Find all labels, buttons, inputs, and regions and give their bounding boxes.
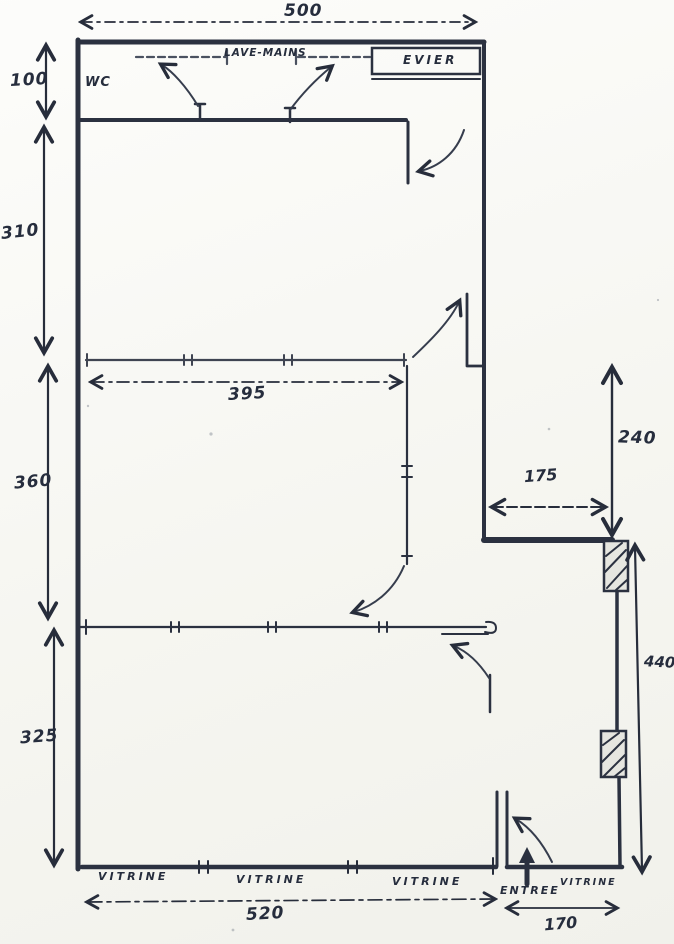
pillar-hatch-lower	[601, 731, 626, 777]
wall-vertical-partition	[402, 366, 412, 564]
wall-lower-partition	[80, 620, 496, 634]
room-label-entrance: ENTREE	[500, 885, 560, 896]
door-arc-wc-right	[290, 67, 331, 110]
floor-plan-drawing	[0, 0, 674, 944]
floor-plan-scan: 500 100 310 360 325 395 240 175 440 520 …	[0, 0, 674, 944]
wall-right-lower	[619, 777, 620, 866]
dim-label-bottom-main: 520	[246, 905, 285, 924]
dim-label-right-upper: 240	[618, 429, 657, 447]
room-label-counter: LAVE-MAINS	[224, 48, 307, 59]
dim-label-top-width: 500	[284, 3, 323, 20]
door-arc-entrance	[516, 819, 552, 862]
door-arc-partition	[354, 566, 404, 612]
dim-line-bottom-520	[88, 899, 494, 902]
dim-line-right-440	[635, 547, 642, 870]
door-arc-lower	[454, 646, 489, 678]
dim-label-left-wc: 100	[10, 71, 49, 90]
wall-mid-partition	[86, 354, 406, 366]
shopfront-label-vitrine-1: VITRINE	[98, 871, 168, 882]
dim-label-interior-width: 395	[228, 385, 267, 404]
scan-speckles	[87, 299, 659, 932]
dim-label-left-middle: 360	[13, 472, 53, 492]
shopfront-label-vitrine-3: VITRINE	[392, 876, 462, 887]
door-leaf-mid-right	[467, 294, 482, 366]
entrance-door-jambs	[497, 792, 507, 866]
room-label-sink: EVIER	[403, 54, 457, 66]
door-arc-top-right	[420, 130, 464, 171]
dim-label-bottom-right: 170	[543, 915, 578, 934]
walls	[78, 40, 628, 869]
shopfront-label-vitrine-2: VITRINE	[236, 874, 306, 885]
pillar-hatch-upper	[604, 541, 628, 591]
dim-label-right-lower: 440	[644, 654, 674, 671]
dim-label-left-lower: 325	[19, 728, 59, 748]
dim-label-niche-width: 175	[523, 467, 557, 485]
room-label-wc: WC	[85, 76, 111, 89]
door-arc-mid-right	[413, 302, 459, 357]
shopfront-label-vitrine-4: VITRINE	[560, 878, 617, 888]
dim-label-left-upper: 310	[0, 222, 40, 243]
door-arc-wc-left	[162, 65, 198, 106]
